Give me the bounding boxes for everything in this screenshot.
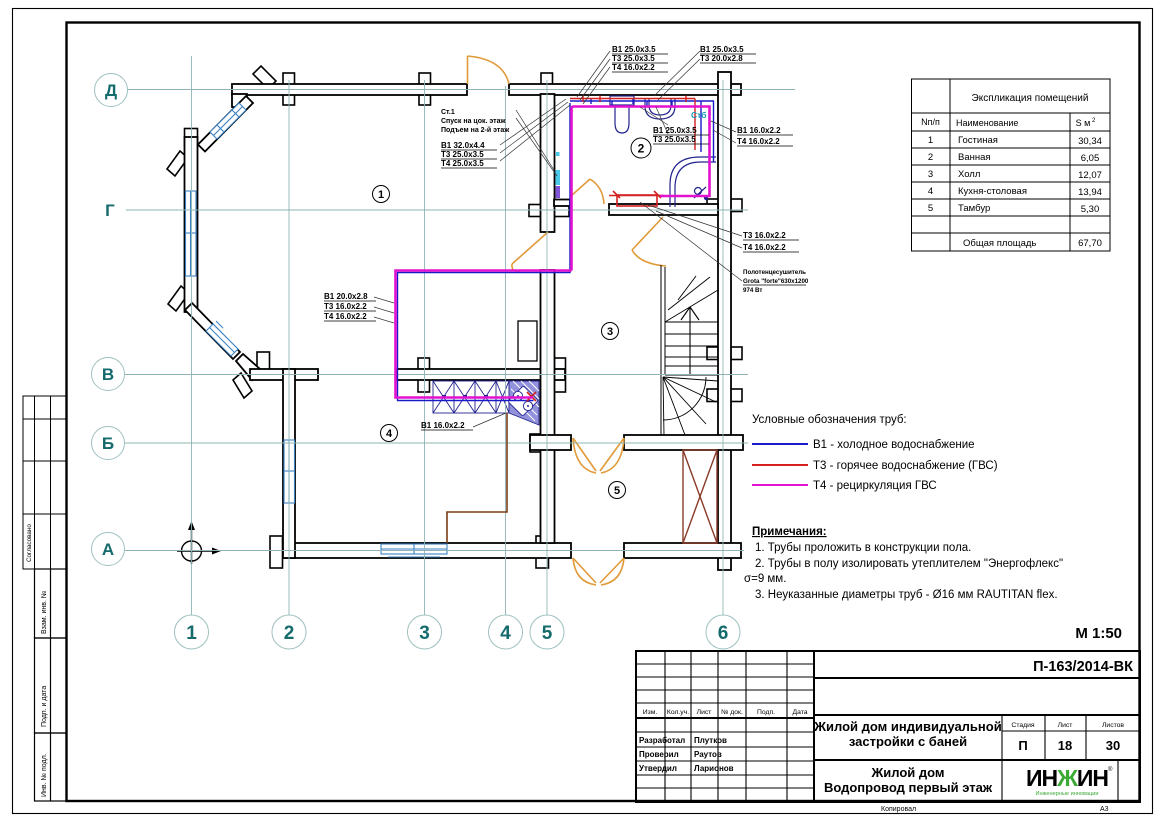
svg-text:В: В <box>102 365 114 384</box>
svg-text:Разработал: Разработал <box>639 736 685 745</box>
svg-text:67,70: 67,70 <box>1078 238 1102 249</box>
svg-text:М 1:50: М 1:50 <box>1075 625 1122 642</box>
svg-text:Стадия: Стадия <box>1011 722 1034 729</box>
svg-text:Nп/п: Nп/п <box>921 117 940 127</box>
svg-text:6,05: 6,05 <box>1081 153 1100 164</box>
svg-text:Т3 25.0х3.5: Т3 25.0х3.5 <box>441 150 484 159</box>
svg-text:5: 5 <box>928 203 933 214</box>
svg-text:А: А <box>102 540 114 559</box>
svg-text:Наименование: Наименование <box>956 118 1018 128</box>
svg-text:Жилой дом: Жилой дом <box>870 765 944 780</box>
svg-text:Д: Д <box>105 81 117 100</box>
svg-text:1: 1 <box>186 623 197 644</box>
svg-text:Гостиная: Гостиная <box>958 135 998 146</box>
svg-text:Т4 16.0х2.2: Т4 16.0х2.2 <box>743 243 786 252</box>
svg-text:Раутов: Раутов <box>694 750 722 759</box>
svg-text:В1 - холодное водоснабжение: В1 - холодное водоснабжение <box>813 439 975 451</box>
svg-text:Стб: Стб <box>691 110 707 120</box>
svg-text:Подъем на 2-й этаж: Подъем на 2-й этаж <box>441 126 510 134</box>
svg-text:Жилой дом индивидуальной: Жилой дом индивидуальной <box>813 719 1001 734</box>
svg-text:Экспликация помещений: Экспликация помещений <box>972 93 1089 104</box>
svg-text:Полотенцесушитель: Полотенцесушитель <box>743 269 806 276</box>
svg-text:Инв. № подл.: Инв. № подл. <box>41 753 48 797</box>
svg-text:1. Трубы проложить в конструкц: 1. Трубы проложить в конструкции пола. <box>755 542 971 554</box>
svg-text:2: 2 <box>284 623 295 644</box>
svg-text:S м: S м <box>1076 118 1091 128</box>
svg-text:Спуск на цок. этаж: Спуск на цок. этаж <box>441 118 506 125</box>
svg-text:В1 16.0х2.2: В1 16.0х2.2 <box>421 421 465 430</box>
svg-text:Плутков: Плутков <box>694 736 727 745</box>
svg-text:Т3 16.0х2.2: Т3 16.0х2.2 <box>324 302 367 311</box>
svg-text:6: 6 <box>718 623 729 644</box>
svg-text:ИНЖИН: ИНЖИН <box>1026 765 1108 791</box>
svg-text:В1 32.0х4.4: В1 32.0х4.4 <box>441 141 485 150</box>
svg-text:Взам. инв. №: Взам. инв. № <box>41 591 48 634</box>
svg-text:Т4 16.0х2.2: Т4 16.0х2.2 <box>612 63 655 72</box>
svg-text:Б: Б <box>102 434 114 453</box>
svg-text:3: 3 <box>419 623 430 644</box>
svg-text:Дата: Дата <box>792 709 807 716</box>
svg-text:П-163/2014-ВК: П-163/2014-ВК <box>1033 659 1133 675</box>
svg-text:№ док.: № док. <box>721 709 743 716</box>
svg-text:В1 16.0х2.2: В1 16.0х2.2 <box>737 126 781 135</box>
svg-text:974 Вт: 974 Вт <box>743 287 762 294</box>
svg-text:Инженерные инновации: Инженерные инновации <box>1036 791 1099 797</box>
svg-text:Ларионов: Ларионов <box>694 764 734 773</box>
svg-text:Лист: Лист <box>697 709 712 716</box>
svg-text:5: 5 <box>542 623 553 644</box>
svg-text:Т3 - горячее водоснабжение (ГВ: Т3 - горячее водоснабжение (ГВС) <box>813 460 998 472</box>
svg-text:Листов: Листов <box>1102 722 1124 729</box>
svg-text:2: 2 <box>928 152 933 163</box>
svg-text:Т3 20.0х2.8: Т3 20.0х2.8 <box>700 54 743 63</box>
svg-text:30,34: 30,34 <box>1078 136 1102 147</box>
svg-text:5: 5 <box>614 485 620 497</box>
svg-text:Т4 - рециркуляция ГВС: Т4 - рециркуляция ГВС <box>813 480 937 492</box>
svg-text:3: 3 <box>607 326 613 338</box>
svg-text:4: 4 <box>928 186 933 197</box>
svg-text:Примечания:: Примечания: <box>752 526 827 538</box>
svg-text:Тамбур: Тамбур <box>958 203 990 214</box>
svg-text:12,07: 12,07 <box>1078 170 1102 181</box>
svg-text:Водопровод первый этаж: Водопровод первый этаж <box>824 780 993 795</box>
svg-text:Кухня-столовая: Кухня-столовая <box>958 186 1027 197</box>
svg-text:Г: Г <box>105 201 115 220</box>
svg-text:А3: А3 <box>1100 806 1109 813</box>
svg-text:П: П <box>1018 738 1027 753</box>
svg-text:Ст.1: Ст.1 <box>441 109 455 116</box>
svg-text:Подп.: Подп. <box>757 709 775 716</box>
svg-text:Т3 16.0х2.2: Т3 16.0х2.2 <box>743 231 786 240</box>
svg-text:застройки с баней: застройки с баней <box>849 734 967 749</box>
svg-text:1: 1 <box>378 189 384 201</box>
svg-text:Изм.: Изм. <box>643 709 658 716</box>
svg-text:13,94: 13,94 <box>1078 187 1102 198</box>
svg-text:Т4 16.0х2.2: Т4 16.0х2.2 <box>324 312 367 321</box>
svg-text:В1 25.0х3.5: В1 25.0х3.5 <box>612 45 656 54</box>
svg-text:В1 20.0х2.8: В1 20.0х2.8 <box>324 292 368 301</box>
svg-text:В1 25.0х3.5: В1 25.0х3.5 <box>653 126 697 135</box>
svg-text:5,30: 5,30 <box>1081 204 1100 215</box>
svg-text:В1 25.0х3.5: В1 25.0х3.5 <box>700 45 744 54</box>
svg-text:1: 1 <box>928 135 933 146</box>
svg-text:Кол.уч.: Кол.уч. <box>667 709 689 716</box>
svg-text:Утвердил: Утвердил <box>639 764 677 773</box>
svg-text:4: 4 <box>386 428 393 440</box>
svg-text:18: 18 <box>1058 738 1072 753</box>
svg-text:2: 2 <box>638 142 645 156</box>
svg-text:®: ® <box>1108 766 1113 773</box>
svg-text:Подп. и дата: Подп. и дата <box>41 686 48 727</box>
svg-text:Лист: Лист <box>1058 722 1073 729</box>
svg-text:Т4 25.0х3.5: Т4 25.0х3.5 <box>441 159 484 168</box>
svg-text:Ванная: Ванная <box>958 152 991 163</box>
svg-text:3: 3 <box>928 169 933 180</box>
svg-text:Проверил: Проверил <box>639 750 679 759</box>
svg-text:Т3 25.0х3.5: Т3 25.0х3.5 <box>653 135 696 144</box>
svg-text:Копировал: Копировал <box>881 806 916 813</box>
svg-text:4: 4 <box>500 623 511 644</box>
svg-text:Холл: Холл <box>958 169 980 180</box>
svg-text:Т4 16.0х2.2: Т4 16.0х2.2 <box>737 137 780 146</box>
svg-text:Условные обозначения труб:: Условные обозначения труб: <box>752 414 907 426</box>
svg-text:Т3 25.0х3.5: Т3 25.0х3.5 <box>612 54 655 63</box>
svg-text:Согласовано: Согласовано <box>26 524 33 562</box>
svg-text:2. Трубы в полу изолировать ут: 2. Трубы в полу изолировать утеплителем … <box>755 558 1063 570</box>
svg-text:Grota "forte"630х1200: Grota "forte"630х1200 <box>743 278 809 285</box>
svg-text:3. Неуказанные диаметры труб -: 3. Неуказанные диаметры труб - Ø16 мм RA… <box>755 589 1058 601</box>
svg-text:σ=9 мм.: σ=9 мм. <box>744 573 786 585</box>
svg-text:30: 30 <box>1106 738 1120 753</box>
svg-text:Общая площадь: Общая площадь <box>963 238 1036 249</box>
